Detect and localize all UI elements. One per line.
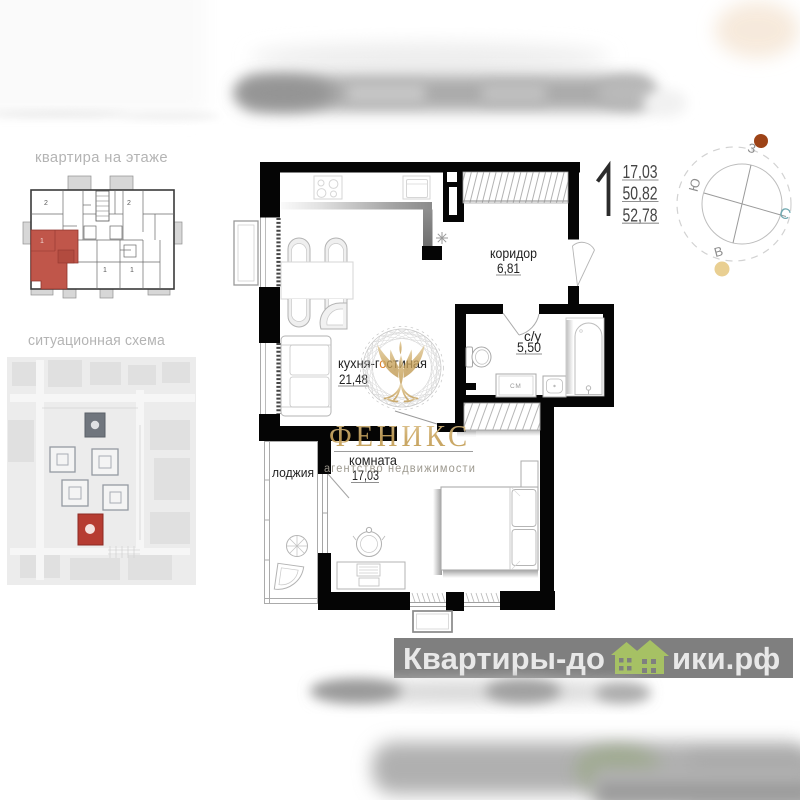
svg-text:21,48: 21,48 — [339, 372, 368, 387]
svg-text:5,50: 5,50 — [517, 340, 541, 355]
svg-text:1: 1 — [40, 238, 44, 245]
svg-text:коридор: коридор — [490, 246, 537, 261]
svg-text:1: 1 — [130, 267, 134, 274]
svg-text:лоджия: лоджия — [272, 466, 314, 480]
svg-text:квартира на этаже: квартира на этаже — [35, 149, 168, 166]
svg-text:агентство недвижимости: агентство недвижимости — [324, 463, 476, 475]
svg-text:ики.рф: ики.рф — [672, 641, 780, 676]
svg-text:СМ: СМ — [510, 383, 522, 390]
svg-text:17,03: 17,03 — [623, 162, 658, 182]
svg-text:6,81: 6,81 — [497, 261, 520, 276]
svg-text:ФЕНИКС: ФЕНИКС — [329, 419, 471, 453]
svg-text:Квартиры-до: Квартиры-до — [403, 641, 605, 676]
svg-text:1: 1 — [103, 267, 107, 274]
svg-text:2: 2 — [127, 200, 131, 207]
svg-text:2: 2 — [44, 200, 48, 207]
svg-text:52,78: 52,78 — [623, 206, 658, 226]
svg-text:50,82: 50,82 — [623, 184, 658, 204]
svg-text:ситуационная схема: ситуационная схема — [28, 332, 165, 349]
